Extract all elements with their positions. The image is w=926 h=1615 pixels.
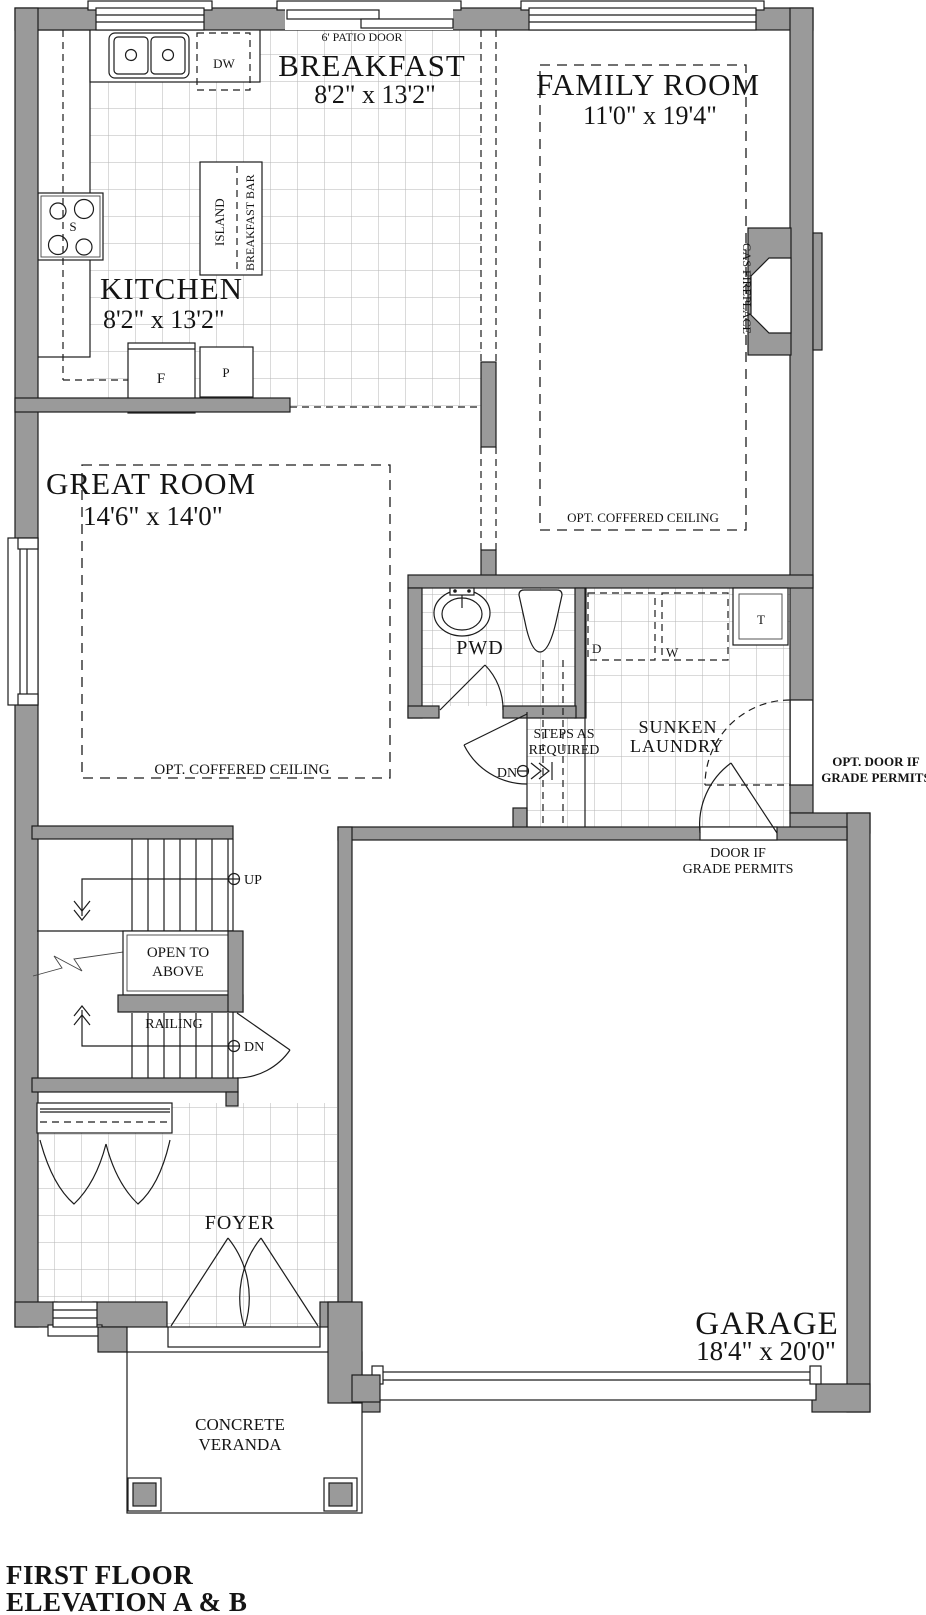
breakfast-dims: 8'2" x 13'2" <box>314 80 436 109</box>
steps-label-1: STEPS AS <box>533 727 594 742</box>
open-above-label-1: OPEN TO <box>147 945 210 961</box>
gas-fireplace-label: GAS FIREPLACE <box>740 243 754 334</box>
family-room-dims: 11'0" x 19'4" <box>583 101 717 130</box>
kitchen-sink <box>109 33 189 78</box>
dn-label-stairs: DN <box>244 1040 264 1055</box>
family-room-title: FAMILY ROOM <box>536 67 760 102</box>
dryer-label: D <box>592 641 601 656</box>
foyer-label: FOYER <box>205 1212 276 1234</box>
great-room-note: OPT. COFFERED CEILING <box>154 762 329 778</box>
garage-door <box>372 1366 821 1400</box>
up-marker <box>74 874 240 921</box>
floor-plan-canvas: 6' PATIO DOOR BREAKFAST 8'2" x 13'2" FAM… <box>0 0 926 1615</box>
patio-door <box>277 1 461 30</box>
laundry-label-1: SUNKEN <box>638 717 717 737</box>
dn-label-laundry: DN <box>497 766 517 781</box>
island-label: ISLAND <box>212 198 227 246</box>
kitchen-title: KITCHEN <box>100 271 243 306</box>
breakfast-bar-label: BREAKFAST BAR <box>243 174 257 271</box>
foyer-front-window <box>48 1302 102 1336</box>
fridge-label: F <box>157 371 165 387</box>
great-room-window <box>8 538 38 705</box>
veranda-label-1: CONCRETE <box>195 1415 285 1434</box>
patio-door-label: 6' PATIO DOOR <box>321 30 402 44</box>
railing-label: RAILING <box>145 1017 203 1032</box>
great-room-dims: 14'6" x 14'0" <box>83 501 223 531</box>
plan-title: FIRST FLOOR ELEVATION A & B <box>6 1560 247 1615</box>
washer-label: W <box>666 645 679 660</box>
veranda-label-2: VERANDA <box>198 1435 282 1454</box>
opt-door-label-1: OPT. DOOR IF <box>832 754 920 769</box>
laundry-label-2: LAUNDRY <box>630 736 724 756</box>
kitchen-dims: 8'2" x 13'2" <box>103 305 225 334</box>
pwd-label: PWD <box>456 637 503 659</box>
pantry-label: P <box>222 365 229 380</box>
stove-label: S <box>69 219 76 234</box>
open-to-above-box <box>123 931 233 995</box>
great-room-title: GREAT ROOM <box>46 466 256 501</box>
plan-title-line2: ELEVATION A & B <box>6 1587 247 1615</box>
garage-dims: 18'4" x 20'0" <box>696 1336 836 1366</box>
plan-title-line1: FIRST FLOOR <box>6 1560 193 1590</box>
foyer-closet <box>37 1103 172 1133</box>
family-room-outline <box>540 65 746 530</box>
door-grade-label-2: GRADE PERMITS <box>683 862 794 877</box>
kitchen-window <box>88 1 212 30</box>
family-room-window <box>521 1 764 30</box>
breakfast-title: BREAKFAST <box>278 48 466 83</box>
steps-label-2: REQUIRED <box>529 743 600 758</box>
floor-plan: 6' PATIO DOOR BREAKFAST 8'2" x 13'2" FAM… <box>0 0 926 1615</box>
breakfast-family-opening <box>481 30 496 550</box>
up-label: UP <box>244 873 262 888</box>
family-room-note: OPT. COFFERED CEILING <box>567 510 719 525</box>
opt-door-label-2: GRADE PERMITS <box>821 770 926 785</box>
tub-label: T <box>757 612 765 627</box>
door-grade-label-1: DOOR IF <box>710 846 766 861</box>
open-above-label-2: ABOVE <box>152 964 204 980</box>
dishwasher-label: DW <box>213 56 235 71</box>
foyer-floor <box>37 1103 337 1327</box>
